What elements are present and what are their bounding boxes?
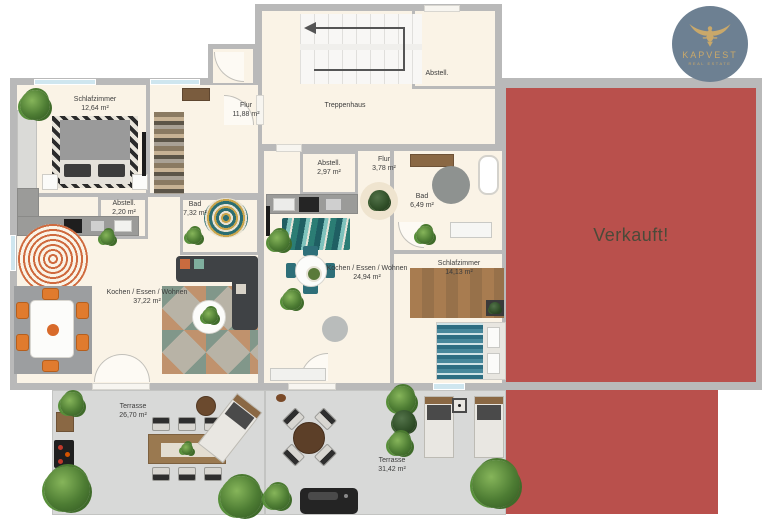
door-entry-middle-apartment xyxy=(276,144,302,152)
plant-middle-1-icon xyxy=(268,230,290,252)
plant-terrace-right-2-icon xyxy=(472,460,520,508)
plant-terrace-left-3-icon xyxy=(220,476,262,518)
sun-lounger-right-2 xyxy=(474,396,504,458)
door-terrace-left xyxy=(92,383,150,390)
room-name: Flur xyxy=(216,101,276,110)
bathtub xyxy=(478,155,499,195)
room-area: 2,97 m² xyxy=(301,168,357,177)
room-name: Terrasse xyxy=(83,402,183,411)
bed-blanket-teal xyxy=(437,323,483,379)
kitchen-cabinet-middle xyxy=(273,198,295,211)
staircase xyxy=(300,14,422,84)
nightstand-right xyxy=(132,174,148,190)
room-name: Abstell. xyxy=(407,69,467,78)
planter-plant-3-icon xyxy=(388,432,412,456)
room-name: Abstell. xyxy=(301,159,357,168)
terrace-chair-4 xyxy=(152,467,170,481)
grill-cart xyxy=(300,488,358,514)
room-name: Schlafzimmer xyxy=(409,259,509,268)
plant-bad-left-icon xyxy=(186,228,202,244)
eagle-icon xyxy=(688,22,732,48)
bed-left xyxy=(60,120,130,184)
tv-middle xyxy=(266,206,270,236)
label-flur-middle: Flur 3,78 m² xyxy=(360,155,408,173)
sofa-pillow-1 xyxy=(180,259,190,269)
plant-terrace-left-2-icon xyxy=(44,466,90,512)
label-schlafzimmer-middle: Schlafzimmer 14,13 m² xyxy=(409,259,509,277)
terrace-table-plant-icon xyxy=(181,443,193,455)
sun-lounger-right-1 xyxy=(424,396,454,458)
tv-bedroom xyxy=(142,132,146,176)
sofa-pillow-3 xyxy=(236,284,246,294)
label-schlafzimmer-left: Schlafzimmer 12,64 m² xyxy=(40,95,150,113)
room-name: Terrasse xyxy=(342,456,442,465)
window-flur-left xyxy=(150,79,200,85)
clock-center-dot xyxy=(458,404,461,407)
room-area: 3,78 m² xyxy=(360,164,408,173)
label-abstell-middle: Abstell. 2,97 m² xyxy=(301,159,357,177)
terrace-chair-5 xyxy=(178,467,196,481)
sideboard-middle xyxy=(270,368,326,381)
room-area: 37,22 m² xyxy=(92,297,202,306)
label-abstell-stairwell: Abstell. xyxy=(407,69,467,78)
plant-kitchen-icon xyxy=(100,230,115,245)
label-flur-left: Flur 11,88 m² xyxy=(216,101,276,119)
grill-coal-1 xyxy=(58,445,63,450)
bed-pillow-bottom xyxy=(487,353,500,374)
grill-knob xyxy=(344,494,348,498)
sold-label: Verkauft! xyxy=(593,225,669,246)
bathroom-vanity xyxy=(450,222,492,238)
kitchen-counter-middle xyxy=(266,194,358,214)
nightstand-plant-icon xyxy=(489,302,501,314)
chair-orange-1 xyxy=(16,302,29,319)
room-area: 12,64 m² xyxy=(40,104,150,113)
plant-terrace-right-1-icon xyxy=(264,484,290,510)
door-stairwell-top xyxy=(424,5,460,12)
terrace-chair-6 xyxy=(204,467,222,481)
logo-brand-text: KAPVEST xyxy=(682,50,738,60)
door-terrace-middle xyxy=(288,383,336,390)
room-name: Kochen / Essen / Wohnen xyxy=(92,288,202,297)
window-kitchen-left xyxy=(10,235,16,271)
grill-left-terrace xyxy=(54,440,74,468)
lounger-wood-bar xyxy=(425,397,453,404)
sofa-pillow-2 xyxy=(194,259,204,269)
chair-orange-6 xyxy=(42,360,59,372)
chair-orange-2 xyxy=(16,334,29,351)
room-name: Bad xyxy=(396,192,448,201)
bathroom-bench xyxy=(410,154,454,167)
round-side-table xyxy=(196,396,216,416)
lounger-wood-bar xyxy=(475,397,503,404)
room-name: Treppenhaus xyxy=(285,101,405,110)
stair-direction-arrow xyxy=(300,14,422,84)
pillow-right xyxy=(98,164,125,177)
plant-terrace-left-1-icon xyxy=(60,392,84,416)
label-bad-left: Bad 7,32 m² xyxy=(170,200,220,218)
label-wohnen-left: Kochen / Essen / Wohnen 37,22 m² xyxy=(92,288,202,306)
room-area: 6,49 m² xyxy=(396,201,448,210)
floor-plan: Verkauft! Schlafzimmer 12,64 m² Flur 11,… xyxy=(0,0,768,524)
sink-middle xyxy=(325,198,342,211)
lounger-pillow xyxy=(477,405,501,420)
room-area: 26,70 m² xyxy=(83,411,183,420)
sold-terrace-overlay xyxy=(506,390,718,514)
nightstand-left xyxy=(42,174,58,190)
logo-tagline-text: REAL ESTATE xyxy=(689,61,732,66)
fruit-bowl xyxy=(47,324,59,336)
planter-plant-2-icon xyxy=(392,410,416,434)
label-abstell-left: Abstell. 2,20 m² xyxy=(96,199,152,217)
grill-coal-2 xyxy=(65,452,70,457)
wall-bad-schlafzimmer xyxy=(394,250,502,254)
chair-orange-5 xyxy=(42,288,59,300)
room-name: Bad xyxy=(170,200,220,209)
label-treppenhaus: Treppenhaus xyxy=(285,101,405,110)
plant-beige-rug-icon xyxy=(369,190,390,211)
label-bad-middle: Bad 6,49 m² xyxy=(396,192,448,210)
label-terrasse-left: Terrasse 26,70 m² xyxy=(83,402,183,420)
round-terracotta-rug xyxy=(18,224,88,294)
lounger-pillow xyxy=(427,405,451,420)
cooktop-middle xyxy=(299,197,319,212)
room-name: Flur xyxy=(360,155,408,164)
room-name: Schlafzimmer xyxy=(40,95,150,104)
grill-lid xyxy=(308,492,338,500)
room-area: 2,20 m² xyxy=(96,208,152,217)
window-schlafzimmer-middle xyxy=(433,383,465,390)
sofa-chaise xyxy=(232,256,258,330)
round-terrace-table xyxy=(293,422,325,454)
sold-unit-overlay: Verkauft! xyxy=(506,88,756,382)
terrace-wall-clock xyxy=(452,398,467,413)
wardrobe xyxy=(17,110,37,192)
kapvest-logo: KAPVEST REAL ESTATE xyxy=(672,6,748,82)
flur-runner-rug xyxy=(154,112,184,194)
grill-coal-3 xyxy=(58,459,63,464)
room-name: Abstell. xyxy=(96,199,152,208)
bed-middle xyxy=(436,322,506,380)
terrace-decor-bird xyxy=(276,394,286,402)
coffee-table-plant-icon xyxy=(202,308,218,324)
plant-middle-2-icon xyxy=(282,290,302,310)
chair-orange-4 xyxy=(76,334,89,351)
bed-pillow-top xyxy=(487,327,500,348)
desk xyxy=(182,88,210,101)
chair-orange-3 xyxy=(76,302,89,319)
kitchen-cabinet xyxy=(114,220,132,232)
room-area: 11,88 m² xyxy=(216,110,276,119)
room-area: 31,42 m² xyxy=(342,465,442,474)
plant-bad-middle-icon xyxy=(416,226,434,244)
room-area: 14,13 m² xyxy=(409,268,509,277)
room-area: 7,32 m² xyxy=(170,209,220,218)
small-gray-rug xyxy=(322,316,348,342)
window-schlafzimmer-left xyxy=(34,79,96,85)
dining-table-left xyxy=(30,300,74,358)
pillow-left xyxy=(64,164,91,177)
label-terrasse-right: Terrasse 31,42 m² xyxy=(342,456,442,474)
